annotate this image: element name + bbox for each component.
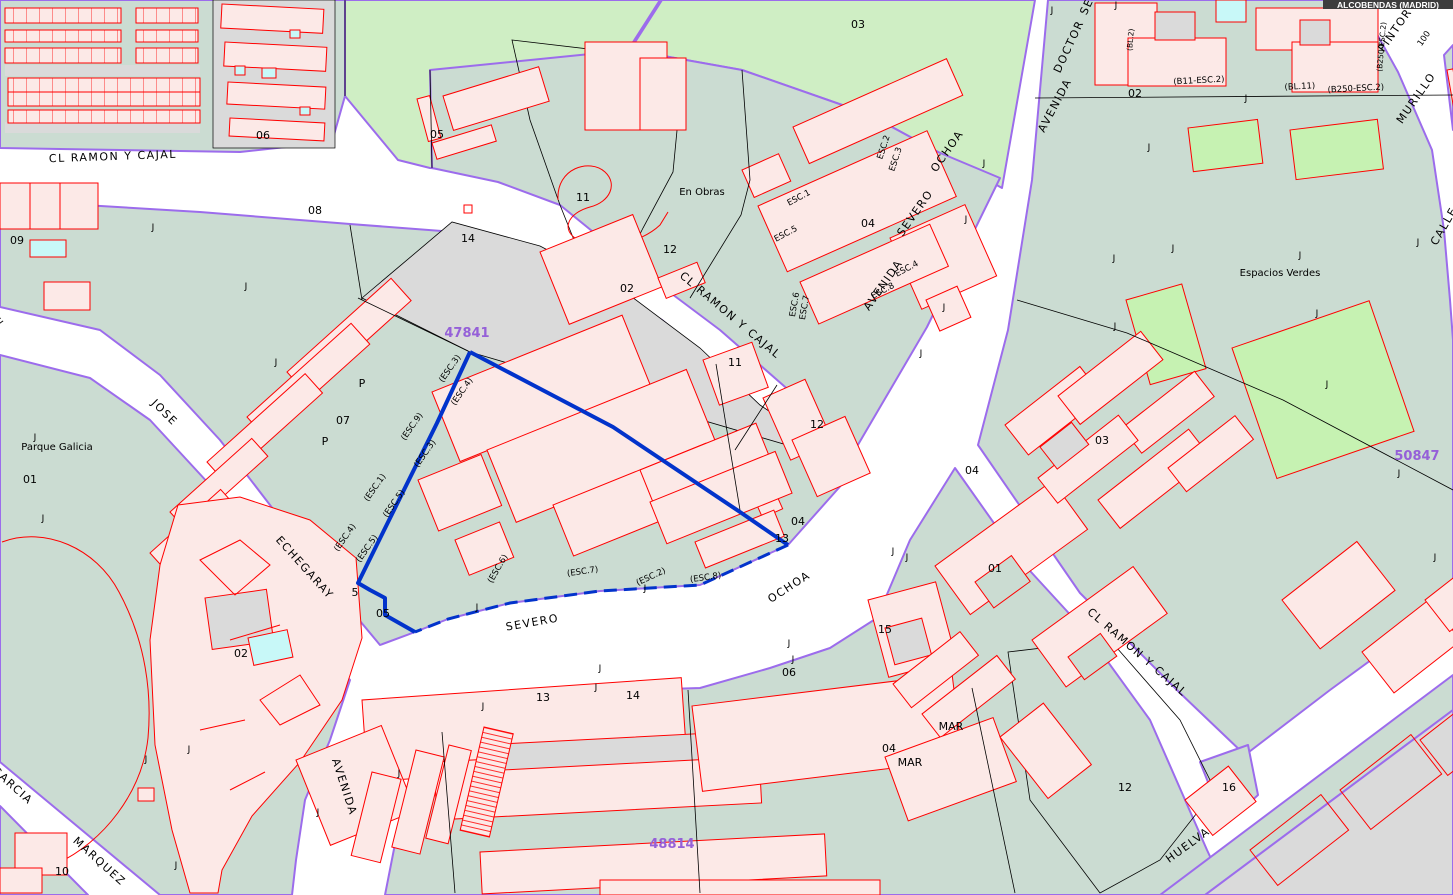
- j-marker: J: [1433, 553, 1437, 563]
- j-marker: J: [316, 808, 320, 818]
- j-marker: J: [33, 433, 37, 443]
- j-marker: J: [475, 603, 479, 613]
- map-sheet-ref: 47841: [444, 326, 489, 341]
- j-marker: J: [787, 639, 791, 649]
- parcel-number: 04: [791, 515, 805, 528]
- j-marker: J: [594, 683, 598, 693]
- parcel-number: 13: [775, 532, 789, 545]
- parcel-number: 02: [1128, 87, 1142, 100]
- parcel-number: 03: [1095, 434, 1109, 447]
- parcel-number: 13: [536, 691, 550, 704]
- info-label: En Obras: [679, 187, 725, 198]
- j-marker: J: [397, 769, 401, 779]
- street-label: CALLE: [0, 312, 7, 347]
- parcel-number: 07: [336, 414, 350, 427]
- parcel-number: 10: [55, 865, 69, 878]
- j-marker: J: [1244, 94, 1248, 104]
- j-marker: J: [144, 755, 148, 765]
- parcel-number: 08: [308, 204, 322, 217]
- street-label: SEVERO: [505, 611, 560, 633]
- j-marker: J: [919, 349, 923, 359]
- parcel-number: 04: [965, 464, 979, 477]
- parcel-number: 11: [576, 191, 590, 204]
- j-marker: J: [244, 282, 248, 292]
- parcel-number: 03: [851, 18, 865, 31]
- parcel-number: 01: [23, 473, 37, 486]
- street-label: CL RAMON Y CAJAL: [49, 148, 177, 165]
- parcel-number: 05: [376, 607, 390, 620]
- parcel-number: 11: [728, 356, 742, 369]
- j-marker: J: [1147, 143, 1151, 153]
- parcel-number: 09: [10, 234, 24, 247]
- j-marker: J: [1298, 251, 1302, 261]
- j-marker: J: [1171, 244, 1175, 254]
- j-marker: J: [151, 223, 155, 233]
- parcel-number: 14: [626, 689, 640, 702]
- parcel-number: 12: [810, 418, 824, 431]
- portal-label: P: [322, 435, 329, 448]
- j-marker: J: [905, 553, 909, 563]
- j-marker: J: [1112, 254, 1116, 264]
- j-marker: J: [187, 745, 191, 755]
- j-marker: J: [481, 702, 485, 712]
- block-label: (BL.11): [1284, 81, 1315, 93]
- street-label: OCHOA: [765, 569, 812, 606]
- j-marker: J: [1315, 309, 1319, 319]
- j-marker: J: [982, 159, 986, 169]
- info-label: Parque Galicia: [21, 442, 93, 453]
- map-sheet-ref: 48814: [649, 837, 694, 852]
- info-label: MAR: [898, 756, 923, 769]
- parcel-number: 14: [461, 232, 475, 245]
- parcel-number: 02: [234, 647, 248, 660]
- parcel-number: 02: [620, 282, 634, 295]
- j-marker: J: [964, 215, 968, 225]
- j-marker: J: [1050, 6, 1054, 16]
- parcel-number: 01: [988, 562, 1002, 575]
- parcel-number: 16: [1222, 781, 1236, 794]
- j-marker: J: [643, 584, 647, 594]
- municipality-badge: ALCOBENDAS (MADRID): [1323, 0, 1453, 9]
- j-marker: J: [1113, 322, 1117, 332]
- map-sheet-ref: 50847: [1394, 449, 1439, 464]
- j-marker: J: [1416, 238, 1420, 248]
- portal-label: P: [359, 377, 366, 390]
- map-canvas[interactable]: CL RAMON Y CAJALCL RAMON Y CAJALCL RAMON…: [0, 0, 1453, 895]
- j-marker: J: [1325, 380, 1329, 390]
- street-number: 100: [1416, 29, 1434, 48]
- parcel-number: 04: [882, 742, 896, 755]
- parcel-number: 12: [1118, 781, 1132, 794]
- j-marker: J: [791, 655, 795, 665]
- j-marker: J: [1114, 1, 1118, 11]
- j-marker: J: [1397, 469, 1401, 479]
- j-marker: J: [891, 547, 895, 557]
- parcel-number: 04: [861, 217, 875, 230]
- parcel-number: 5: [352, 586, 359, 599]
- j-marker: J: [942, 303, 946, 313]
- j-marker: J: [174, 861, 178, 871]
- j-marker: J: [598, 664, 602, 674]
- info-label: MAR: [939, 720, 964, 733]
- parcel-number: 06: [782, 666, 796, 679]
- j-marker: J: [41, 514, 45, 524]
- info-label: Espacios Verdes: [1240, 268, 1321, 279]
- parcel-number: 05: [430, 128, 444, 141]
- j-marker: J: [274, 358, 278, 368]
- parcel-number: 15: [878, 623, 892, 636]
- parcel-number: 06: [256, 129, 270, 142]
- cadastral-map-viewer: CL RAMON Y CAJALCL RAMON Y CAJALCL RAMON…: [0, 0, 1453, 895]
- parcel-number: 12: [663, 243, 677, 256]
